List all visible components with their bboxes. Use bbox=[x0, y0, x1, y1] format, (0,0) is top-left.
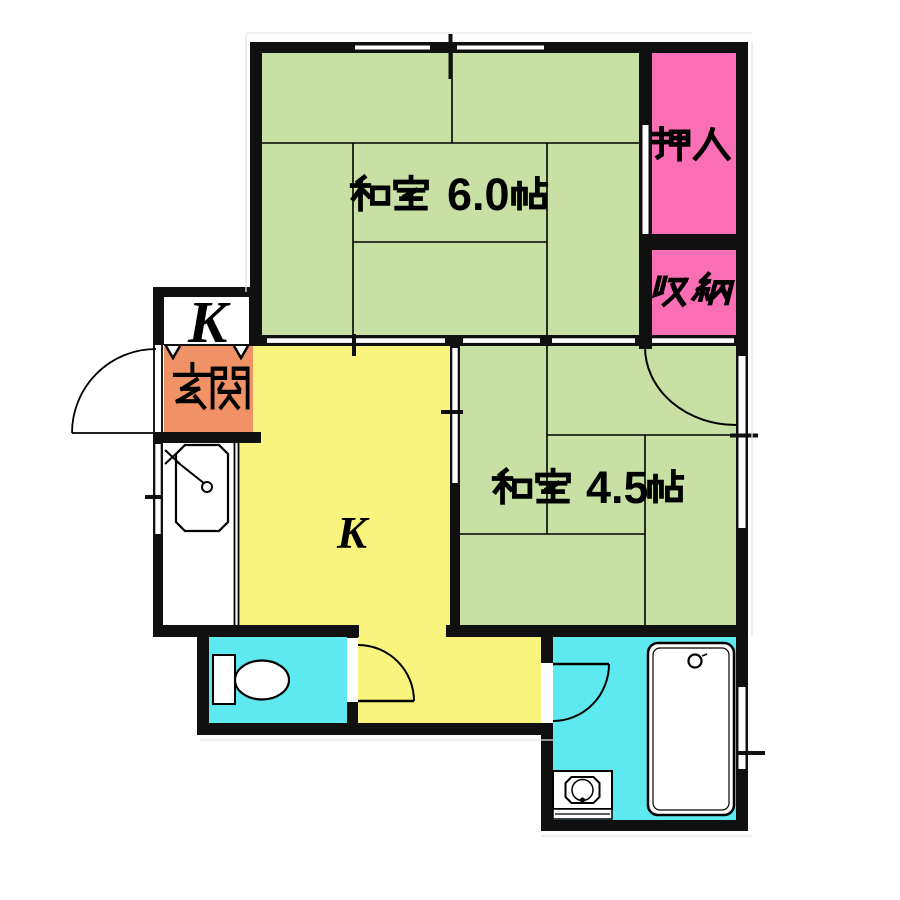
svg-text:K: K bbox=[336, 508, 370, 558]
svg-text:K: K bbox=[187, 289, 231, 355]
svg-text:6.0: 6.0 bbox=[447, 169, 510, 220]
svg-text:4.5: 4.5 bbox=[586, 462, 649, 513]
